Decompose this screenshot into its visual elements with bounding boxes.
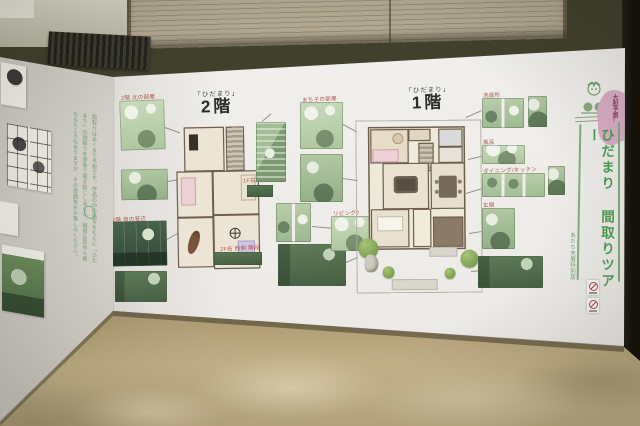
left-wall-intro-text: 間取りはあくまで予想です。作品の中の描写をもとに「ひだまり」の間取りを想像で描き…: [52, 107, 98, 267]
manga-panel: [482, 145, 525, 164]
manga-panel: [300, 154, 343, 202]
plan-bath: [439, 130, 461, 146]
plan-chair: [435, 180, 439, 184]
plan-chair: [458, 180, 462, 184]
small-photo-slab: [247, 185, 273, 197]
plan-bed-pink: [374, 150, 398, 161]
plan-garden-bush: [460, 249, 478, 267]
plan-hallway: [414, 210, 430, 246]
roller-shutter: [127, 0, 567, 49]
manga-panel-tall: [482, 208, 515, 249]
manga-panel: [119, 99, 166, 151]
plan-stairs: [227, 128, 244, 170]
plan-entry-step: [430, 248, 456, 256]
exhibit-title: ひだまり 間取りツアー: [586, 128, 613, 298]
plan-chair: [458, 190, 462, 194]
manga-panel: [121, 169, 169, 201]
exhibition-room-photo: 間取りはあくまで予想です。作品の中の描写をもとに「ひだまり」の間取りを想像で描き…: [0, 0, 640, 426]
manga-panel: [528, 96, 547, 127]
floor2-floor-number: 2階: [182, 97, 253, 118]
plan-chair: [435, 190, 439, 194]
plan-desk: [189, 134, 198, 150]
radiator: [47, 31, 151, 69]
manga-panel: [300, 102, 343, 149]
manga-panel-staircase: [256, 122, 286, 182]
manga-panel-pair: [276, 203, 311, 242]
manga-panel-pair: [482, 98, 524, 128]
speech-bubble-text: 大胆予想!: [610, 94, 619, 124]
floor1-floor-number: 1階: [393, 93, 464, 114]
plan-garden-path: [393, 280, 437, 289]
manga-artwork-portrait: [1, 62, 26, 108]
manga-panel: [115, 271, 167, 302]
manga-panel-row: [482, 173, 545, 197]
small-photo-slab: [214, 252, 262, 265]
manga-page-spread: [7, 123, 51, 193]
plan-round-table: [393, 134, 402, 143]
no-flash-icon: [587, 298, 599, 313]
plan-futon: [378, 217, 402, 230]
plan-garden-bush: [383, 266, 395, 278]
floor1-label: 「ひだまり」 1階: [393, 83, 464, 114]
plan-kotatsu-table: [394, 176, 418, 193]
floor2-label: 「ひだまり」 2階: [182, 87, 253, 118]
floorplan-1f: [355, 119, 483, 293]
manga-panel-wide: [478, 256, 543, 288]
manga-panel: [548, 166, 565, 195]
exhibit-subtitle: あだち充展特別版: [568, 232, 576, 296]
manga-panel-night: [112, 221, 168, 267]
ceiling-highlight: [0, 0, 34, 18]
plan-bed-pink: [182, 178, 195, 204]
plan-garden-bush: [445, 268, 456, 279]
plan-dining-table: [439, 176, 457, 198]
no-photography-icon: [587, 280, 599, 295]
plan-entrance: [434, 218, 462, 246]
title-rule-right: [618, 122, 620, 282]
green-manga-panel: [2, 244, 44, 317]
plan-closet: [409, 130, 429, 140]
plan-garden-stone: [364, 254, 378, 272]
plan-washroom: [439, 148, 461, 162]
white-sheet: [0, 201, 18, 236]
